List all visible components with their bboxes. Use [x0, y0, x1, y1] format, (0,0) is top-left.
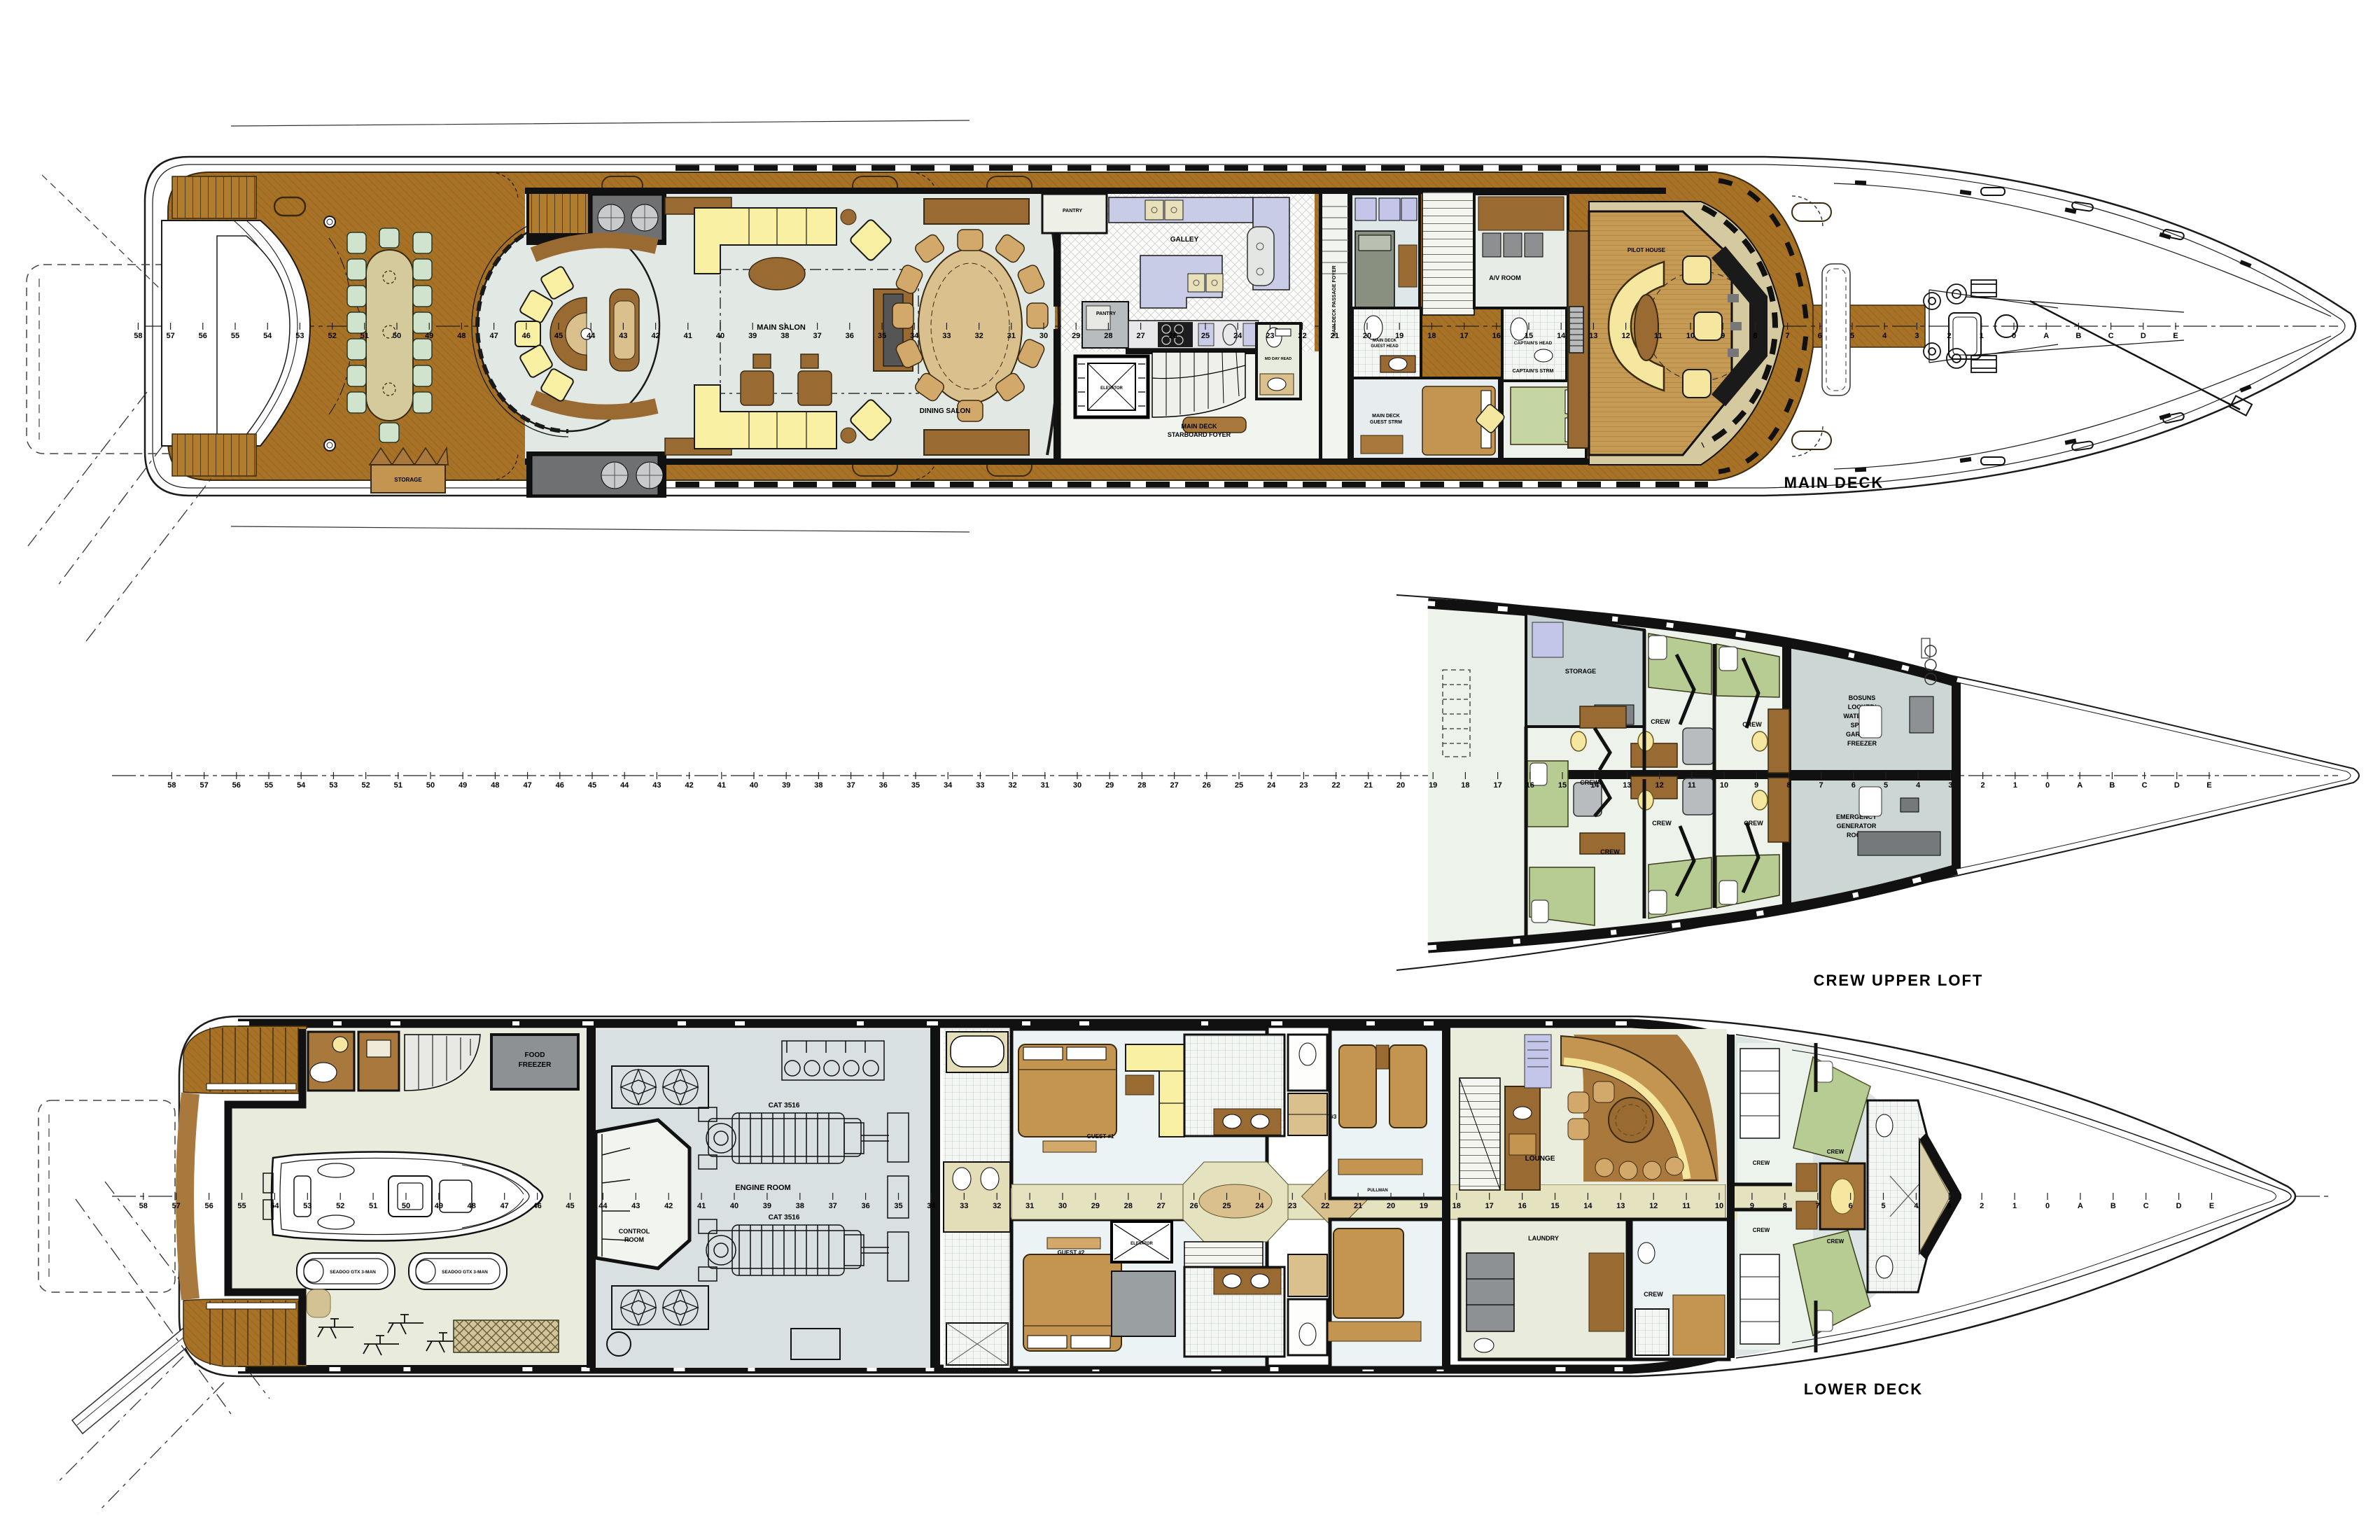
svg-text:7: 7	[1816, 1202, 1820, 1210]
svg-text:51: 51	[360, 332, 369, 340]
svg-text:53: 53	[329, 781, 337, 790]
svg-text:32: 32	[974, 332, 983, 340]
svg-text:CREW: CREW	[1600, 848, 1620, 855]
svg-text:34: 34	[944, 781, 953, 790]
svg-text:20: 20	[1387, 1202, 1395, 1210]
svg-text:15: 15	[1525, 332, 1533, 340]
svg-text:37: 37	[846, 781, 855, 790]
svg-text:19: 19	[1395, 332, 1403, 340]
svg-text:44: 44	[620, 781, 629, 790]
svg-text:CREW: CREW	[1827, 1149, 1844, 1155]
svg-text:45: 45	[566, 1202, 574, 1210]
svg-text:ROOM: ROOM	[624, 1236, 644, 1243]
svg-text:8: 8	[1753, 332, 1757, 340]
svg-text:GUEST STRM: GUEST STRM	[1370, 420, 1402, 425]
svg-text:25: 25	[1201, 332, 1210, 340]
svg-text:26: 26	[1189, 1202, 1198, 1210]
svg-text:9: 9	[1754, 781, 1758, 790]
svg-text:CREW: CREW	[1827, 1238, 1844, 1245]
svg-text:DINING SALON: DINING SALON	[920, 407, 971, 415]
svg-text:56: 56	[232, 781, 241, 790]
svg-text:5: 5	[1884, 781, 1888, 790]
svg-text:46: 46	[556, 781, 564, 790]
svg-text:B: B	[2075, 332, 2081, 340]
svg-text:C: C	[2108, 332, 2114, 340]
svg-text:GALLEY: GALLEY	[1170, 236, 1199, 244]
svg-text:17: 17	[1459, 332, 1468, 340]
svg-text:A: A	[2078, 1202, 2083, 1210]
svg-text:52: 52	[336, 1202, 344, 1210]
svg-text:37: 37	[813, 332, 821, 340]
svg-text:0: 0	[2045, 781, 2050, 790]
svg-text:20: 20	[1363, 332, 1371, 340]
svg-text:5: 5	[1881, 1202, 1885, 1210]
svg-text:39: 39	[782, 781, 790, 790]
svg-text:40: 40	[730, 1202, 738, 1210]
svg-text:46: 46	[522, 332, 531, 340]
svg-text:41: 41	[697, 1202, 706, 1210]
svg-text:29: 29	[1091, 1202, 1100, 1210]
svg-text:5: 5	[1850, 332, 1854, 340]
svg-text:25: 25	[1222, 1202, 1231, 1210]
svg-text:23: 23	[1288, 1202, 1296, 1210]
svg-text:CREW: CREW	[1652, 820, 1672, 827]
svg-text:SEADOO GTX 3-MAN: SEADOO GTX 3-MAN	[330, 1270, 376, 1275]
svg-text:STORAGE: STORAGE	[1565, 668, 1596, 675]
svg-text:54: 54	[297, 781, 306, 790]
svg-text:D: D	[2176, 1202, 2182, 1210]
svg-text:31: 31	[1041, 781, 1049, 790]
svg-text:58: 58	[139, 1202, 148, 1210]
svg-text:42: 42	[685, 781, 693, 790]
svg-text:45: 45	[554, 332, 563, 340]
svg-text:41: 41	[717, 781, 726, 790]
svg-text:49: 49	[425, 332, 433, 340]
svg-text:GUEST #2: GUEST #2	[1058, 1249, 1085, 1256]
svg-text:12: 12	[1649, 1202, 1658, 1210]
svg-text:30: 30	[1039, 332, 1048, 340]
svg-text:44: 44	[587, 332, 596, 340]
svg-text:45: 45	[588, 781, 596, 790]
svg-text:ELEVATOR: ELEVATOR	[1100, 386, 1123, 391]
svg-text:CAT 3516: CAT 3516	[769, 1102, 800, 1109]
svg-text:BOSUNS: BOSUNS	[1849, 694, 1876, 701]
svg-text:11: 11	[1688, 781, 1696, 790]
svg-text:6: 6	[1851, 781, 1856, 790]
svg-text:CREW: CREW	[1742, 721, 1762, 728]
svg-text:ELEVATOR: ELEVATOR	[1130, 1242, 1153, 1246]
svg-text:24: 24	[1233, 332, 1242, 340]
svg-text:58: 58	[134, 332, 142, 340]
svg-text:10: 10	[1686, 332, 1695, 340]
svg-text:26: 26	[1203, 781, 1211, 790]
svg-text:C: C	[2142, 781, 2148, 790]
svg-text:43: 43	[652, 781, 661, 790]
svg-text:35: 35	[911, 781, 920, 790]
svg-text:CAT 3516: CAT 3516	[769, 1214, 800, 1221]
svg-text:29: 29	[1072, 332, 1080, 340]
svg-text:43: 43	[631, 1202, 640, 1210]
svg-text:CREW: CREW	[1744, 820, 1763, 827]
svg-text:19: 19	[1429, 781, 1437, 790]
svg-text:24: 24	[1255, 1202, 1264, 1210]
svg-text:52: 52	[328, 332, 336, 340]
svg-text:35: 35	[878, 332, 886, 340]
svg-text:CREW: CREW	[1651, 718, 1670, 725]
svg-text:PILOT HOUSE: PILOT HOUSE	[1627, 247, 1666, 253]
svg-text:14: 14	[1557, 332, 1566, 340]
svg-text:23: 23	[1299, 781, 1308, 790]
svg-text:29: 29	[1105, 781, 1114, 790]
svg-text:MD DAY HEAD: MD DAY HEAD	[1265, 357, 1291, 361]
svg-text:A: A	[2077, 781, 2082, 790]
svg-text:3: 3	[1947, 1202, 1951, 1210]
svg-text:B: B	[2110, 1202, 2116, 1210]
svg-text:SEADOO GTX 3-MAN: SEADOO GTX 3-MAN	[442, 1270, 488, 1275]
svg-text:14: 14	[1590, 781, 1599, 790]
svg-text:CREW: CREW	[1753, 1227, 1770, 1233]
svg-text:40: 40	[716, 332, 724, 340]
svg-text:17: 17	[1485, 1202, 1494, 1210]
svg-text:24: 24	[1267, 781, 1276, 790]
svg-text:CAPTAIN'S HEAD: CAPTAIN'S HEAD	[1514, 341, 1553, 346]
svg-text:9: 9	[1721, 332, 1725, 340]
svg-text:PANTRY: PANTRY	[1063, 209, 1082, 213]
svg-text:16: 16	[1492, 332, 1501, 340]
svg-text:35: 35	[894, 1202, 902, 1210]
svg-text:43: 43	[619, 332, 627, 340]
svg-text:54: 54	[270, 1202, 279, 1210]
svg-text:50: 50	[393, 332, 401, 340]
svg-text:34: 34	[927, 1202, 936, 1210]
svg-text:FOOD: FOOD	[525, 1051, 545, 1059]
svg-text:38: 38	[814, 781, 822, 790]
svg-text:6: 6	[1818, 332, 1822, 340]
svg-text:40: 40	[750, 781, 758, 790]
svg-text:27: 27	[1157, 1202, 1165, 1210]
svg-text:ENGINE ROOM: ENGINE ROOM	[735, 1184, 790, 1192]
svg-text:E: E	[2206, 781, 2211, 790]
svg-text:16: 16	[1526, 781, 1534, 790]
svg-text:36: 36	[861, 1202, 869, 1210]
svg-text:47: 47	[489, 332, 498, 340]
svg-text:37: 37	[829, 1202, 837, 1210]
svg-text:A: A	[2043, 332, 2049, 340]
svg-text:33: 33	[976, 781, 984, 790]
svg-text:MAIN SALON: MAIN SALON	[757, 323, 806, 332]
svg-text:CREW UPPER LOFT: CREW UPPER LOFT	[1814, 972, 1984, 989]
svg-text:GUEST HEAD: GUEST HEAD	[1371, 344, 1399, 349]
svg-text:18: 18	[1452, 1202, 1461, 1210]
svg-text:A/V ROOM: A/V ROOM	[1489, 274, 1521, 281]
svg-text:0: 0	[2012, 332, 2016, 340]
svg-text:6: 6	[1849, 1202, 1853, 1210]
svg-text:55: 55	[237, 1202, 246, 1210]
svg-text:3: 3	[1948, 781, 1952, 790]
svg-text:51: 51	[369, 1202, 377, 1210]
svg-text:GUEST #1: GUEST #1	[1087, 1133, 1114, 1140]
svg-text:D: D	[2174, 781, 2180, 790]
svg-text:36: 36	[879, 781, 888, 790]
svg-text:31: 31	[1025, 1202, 1034, 1210]
svg-text:3: 3	[1914, 332, 1919, 340]
svg-text:32: 32	[1008, 781, 1016, 790]
svg-text:0: 0	[2045, 1202, 2050, 1210]
svg-text:17: 17	[1493, 781, 1501, 790]
svg-text:LOWER DECK: LOWER DECK	[1804, 1380, 1923, 1398]
svg-text:56: 56	[204, 1202, 213, 1210]
svg-text:53: 53	[303, 1202, 311, 1210]
svg-text:47: 47	[500, 1202, 509, 1210]
svg-text:16: 16	[1518, 1202, 1526, 1210]
svg-text:10: 10	[1715, 1202, 1723, 1210]
svg-text:FREEZER: FREEZER	[519, 1061, 552, 1069]
svg-text:MAIN DECK: MAIN DECK	[1372, 414, 1400, 419]
svg-text:33: 33	[960, 1202, 968, 1210]
svg-text:41: 41	[684, 332, 692, 340]
svg-text:42: 42	[651, 332, 659, 340]
svg-text:15: 15	[1550, 1202, 1559, 1210]
svg-text:26: 26	[1169, 332, 1177, 340]
svg-text:53: 53	[295, 332, 304, 340]
svg-text:GENERATOR: GENERATOR	[1837, 822, 1877, 829]
svg-text:55: 55	[231, 332, 239, 340]
svg-text:34: 34	[910, 332, 919, 340]
svg-text:30: 30	[1073, 781, 1081, 790]
svg-text:28: 28	[1124, 1202, 1133, 1210]
svg-text:50: 50	[402, 1202, 410, 1210]
svg-text:2: 2	[1947, 332, 1952, 340]
svg-text:22: 22	[1321, 1202, 1329, 1210]
svg-text:44: 44	[598, 1202, 608, 1210]
svg-text:54: 54	[263, 332, 272, 340]
svg-text:1: 1	[2012, 1202, 2017, 1210]
svg-text:7: 7	[1786, 332, 1790, 340]
svg-text:12: 12	[1655, 781, 1663, 790]
svg-text:B: B	[2109, 781, 2115, 790]
svg-text:55: 55	[265, 781, 273, 790]
svg-text:11: 11	[1654, 332, 1662, 340]
svg-text:21: 21	[1364, 781, 1373, 790]
svg-text:CREW: CREW	[1644, 1291, 1663, 1298]
svg-text:STORAGE: STORAGE	[394, 477, 422, 483]
svg-text:28: 28	[1104, 332, 1112, 340]
svg-text:23: 23	[1266, 332, 1274, 340]
svg-text:STARBOARD FOYER: STARBOARD FOYER	[1168, 431, 1231, 438]
svg-text:MAIN DECK: MAIN DECK	[1182, 423, 1217, 430]
svg-text:14: 14	[1583, 1202, 1592, 1210]
svg-text:47: 47	[523, 781, 531, 790]
svg-text:19: 19	[1420, 1202, 1428, 1210]
svg-text:15: 15	[1558, 781, 1567, 790]
svg-text:E: E	[2173, 332, 2178, 340]
svg-text:39: 39	[763, 1202, 771, 1210]
svg-text:22: 22	[1331, 781, 1340, 790]
svg-text:11: 11	[1682, 1202, 1690, 1210]
svg-text:4: 4	[1914, 1202, 1919, 1210]
svg-text:4: 4	[1882, 332, 1887, 340]
svg-text:8: 8	[1783, 1202, 1787, 1210]
svg-text:12: 12	[1621, 332, 1630, 340]
svg-text:25: 25	[1235, 781, 1243, 790]
svg-text:49: 49	[435, 1202, 443, 1210]
svg-text:28: 28	[1137, 781, 1146, 790]
svg-text:13: 13	[1589, 332, 1597, 340]
svg-text:27: 27	[1136, 332, 1144, 340]
svg-text:PULLMAN: PULLMAN	[1367, 1189, 1387, 1193]
svg-text:50: 50	[426, 781, 435, 790]
svg-text:7: 7	[1819, 781, 1823, 790]
svg-text:10: 10	[1720, 781, 1728, 790]
svg-text:1: 1	[1980, 332, 1984, 340]
svg-text:27: 27	[1170, 781, 1178, 790]
svg-text:C: C	[2143, 1202, 2149, 1210]
svg-text:CAPTAIN'S STRM: CAPTAIN'S STRM	[1513, 369, 1554, 374]
svg-text:MAIN DECK: MAIN DECK	[1784, 474, 1884, 491]
svg-text:2: 2	[1980, 1202, 1984, 1210]
svg-text:CREW: CREW	[1753, 1160, 1770, 1166]
svg-text:4: 4	[1916, 781, 1921, 790]
svg-text:22: 22	[1298, 332, 1306, 340]
svg-text:9: 9	[1750, 1202, 1754, 1210]
svg-text:39: 39	[748, 332, 757, 340]
svg-text:48: 48	[468, 1202, 476, 1210]
svg-text:57: 57	[199, 781, 208, 790]
svg-text:42: 42	[664, 1202, 673, 1210]
svg-text:MAIN DECK: MAIN DECK	[1373, 339, 1397, 343]
svg-text:32: 32	[993, 1202, 1001, 1210]
svg-text:13: 13	[1623, 781, 1631, 790]
svg-text:49: 49	[458, 781, 467, 790]
svg-text:20: 20	[1396, 781, 1405, 790]
svg-text:51: 51	[394, 781, 402, 790]
svg-text:57: 57	[172, 1202, 181, 1210]
svg-text:13: 13	[1616, 1202, 1625, 1210]
svg-text:38: 38	[780, 332, 789, 340]
svg-text:38: 38	[796, 1202, 804, 1210]
svg-text:FREEZER: FREEZER	[1847, 740, 1877, 747]
svg-text:36: 36	[846, 332, 854, 340]
svg-text:18: 18	[1427, 332, 1436, 340]
svg-text:48: 48	[491, 781, 499, 790]
svg-text:57: 57	[166, 332, 174, 340]
svg-text:D: D	[2141, 332, 2146, 340]
svg-text:2: 2	[1981, 781, 1985, 790]
svg-text:1: 1	[2013, 781, 2017, 790]
svg-text:8: 8	[1786, 781, 1791, 790]
svg-text:52: 52	[361, 781, 370, 790]
svg-text:58: 58	[167, 781, 176, 790]
svg-text:30: 30	[1058, 1202, 1067, 1210]
svg-text:56: 56	[199, 332, 207, 340]
svg-text:31: 31	[1007, 332, 1016, 340]
svg-text:33: 33	[942, 332, 951, 340]
svg-text:PANTRY: PANTRY	[1096, 311, 1116, 316]
svg-text:CONTROL: CONTROL	[619, 1228, 650, 1235]
svg-text:LAUNDRY: LAUNDRY	[1528, 1235, 1559, 1242]
svg-text:46: 46	[533, 1202, 541, 1210]
svg-text:E: E	[2209, 1202, 2214, 1210]
svg-text:48: 48	[457, 332, 465, 340]
svg-text:21: 21	[1331, 332, 1339, 340]
svg-text:LOUNGE: LOUNGE	[1525, 1155, 1555, 1163]
svg-text:21: 21	[1354, 1202, 1362, 1210]
svg-text:18: 18	[1461, 781, 1469, 790]
